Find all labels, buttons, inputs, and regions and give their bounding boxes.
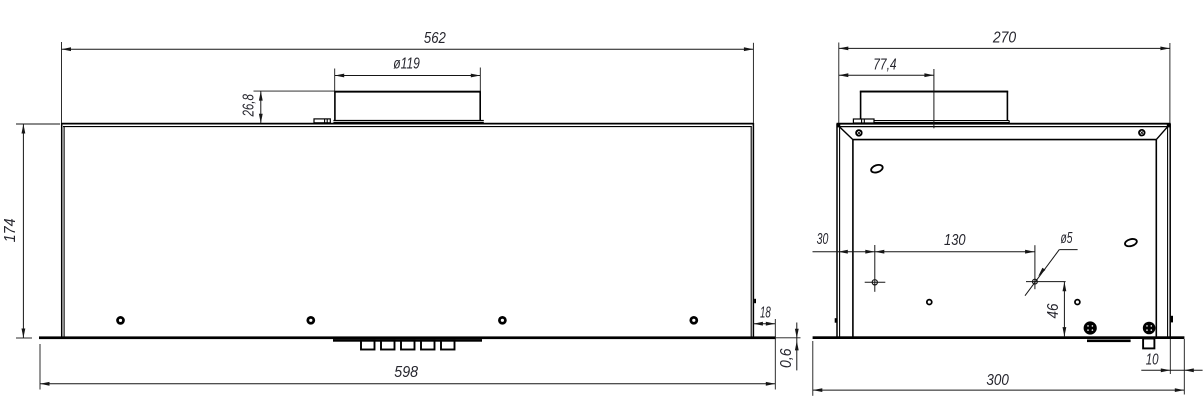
svg-text:598: 598: [394, 364, 418, 381]
svg-text:ø5: ø5: [1061, 230, 1073, 247]
svg-text:30: 30: [817, 231, 829, 248]
svg-text:562: 562: [424, 30, 446, 47]
svg-text:18: 18: [760, 304, 771, 321]
svg-text:46: 46: [1045, 303, 1062, 318]
svg-text:300: 300: [986, 372, 1009, 389]
svg-text:77,4: 77,4: [873, 57, 897, 74]
svg-text:10: 10: [1146, 352, 1159, 369]
svg-text:ø119: ø119: [393, 55, 420, 72]
svg-text:270: 270: [992, 30, 1017, 47]
svg-text:174: 174: [2, 218, 19, 242]
svg-text:130: 130: [944, 232, 966, 249]
svg-text:26,8: 26,8: [240, 94, 257, 118]
svg-text:0,6: 0,6: [778, 348, 795, 368]
